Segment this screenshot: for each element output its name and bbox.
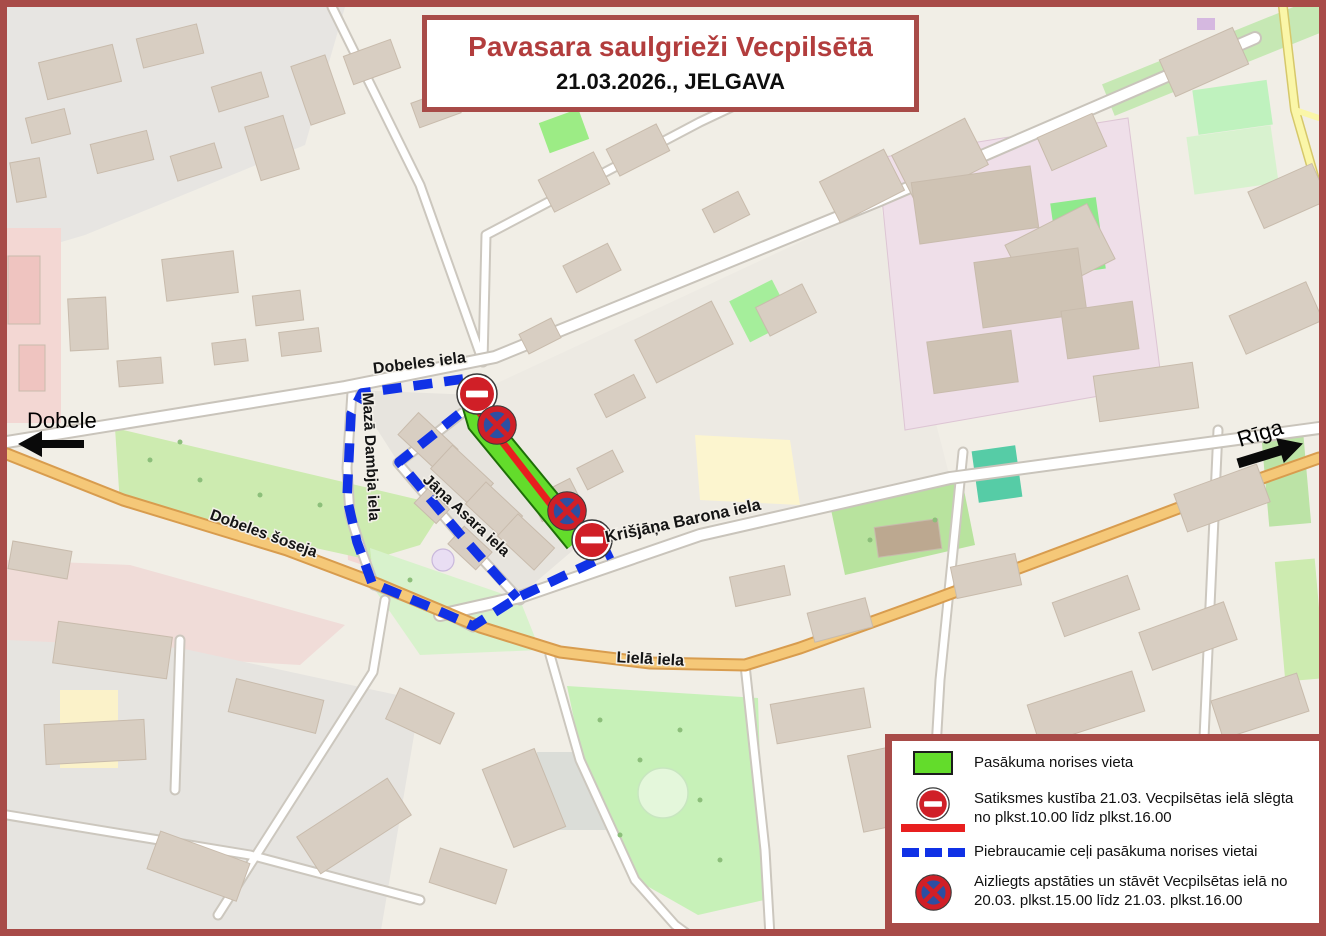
event-title: Pavasara saulgrieži Vecpilsētā bbox=[433, 32, 908, 63]
no-stopping-sign bbox=[478, 406, 516, 444]
legend-label: Satiksmes kustība 21.03. Vecpilsētas iel… bbox=[974, 790, 1310, 828]
legend-row-road-closed: Satiksmes kustība 21.03. Vecpilsētas iel… bbox=[892, 787, 1310, 832]
legend-label: Piebraucamie ceļi pasākuma norises vieta… bbox=[974, 843, 1261, 862]
legend-label: Aizliegts apstāties un stāvēt Vecpilsēta… bbox=[974, 873, 1310, 911]
legend-row-event-area: Pasākuma norises vieta bbox=[892, 751, 1310, 775]
legend-row-no-stopping: Aizliegts apstāties un stāvēt Vecpilsēta… bbox=[892, 873, 1310, 911]
no-entry-sign-icon bbox=[892, 787, 974, 832]
legend: Pasākuma norises vieta Satiksmes kustība… bbox=[885, 734, 1326, 930]
legend-row-access-routes: Piebraucamie ceļi pasākuma norises vieta… bbox=[892, 843, 1310, 862]
event-date-city: 21.03.2026., JELGAVA bbox=[433, 69, 908, 95]
traffic-scheme-poster: Dobeles iela Mazā Dambja iela Jāņa Asara… bbox=[0, 0, 1326, 936]
closed-road-line-icon bbox=[901, 824, 965, 832]
no-stopping-sign-icon bbox=[892, 874, 974, 911]
no-entry-sign-icon-svg bbox=[916, 787, 950, 821]
street-label-liela-iela: Lielā iela bbox=[616, 649, 684, 670]
dobele-label: Dobele bbox=[27, 408, 97, 433]
legend-label: Pasākuma norises vieta bbox=[974, 754, 1137, 773]
title-box: Pavasara saulgrieži Vecpilsētā 21.03.202… bbox=[422, 15, 919, 112]
event-area-swatch bbox=[892, 751, 974, 775]
blue-dashed-line-icon bbox=[892, 848, 974, 857]
no-stopping-sign-icon-svg bbox=[915, 874, 952, 911]
direction-west-dobele: Dobele bbox=[18, 408, 97, 457]
